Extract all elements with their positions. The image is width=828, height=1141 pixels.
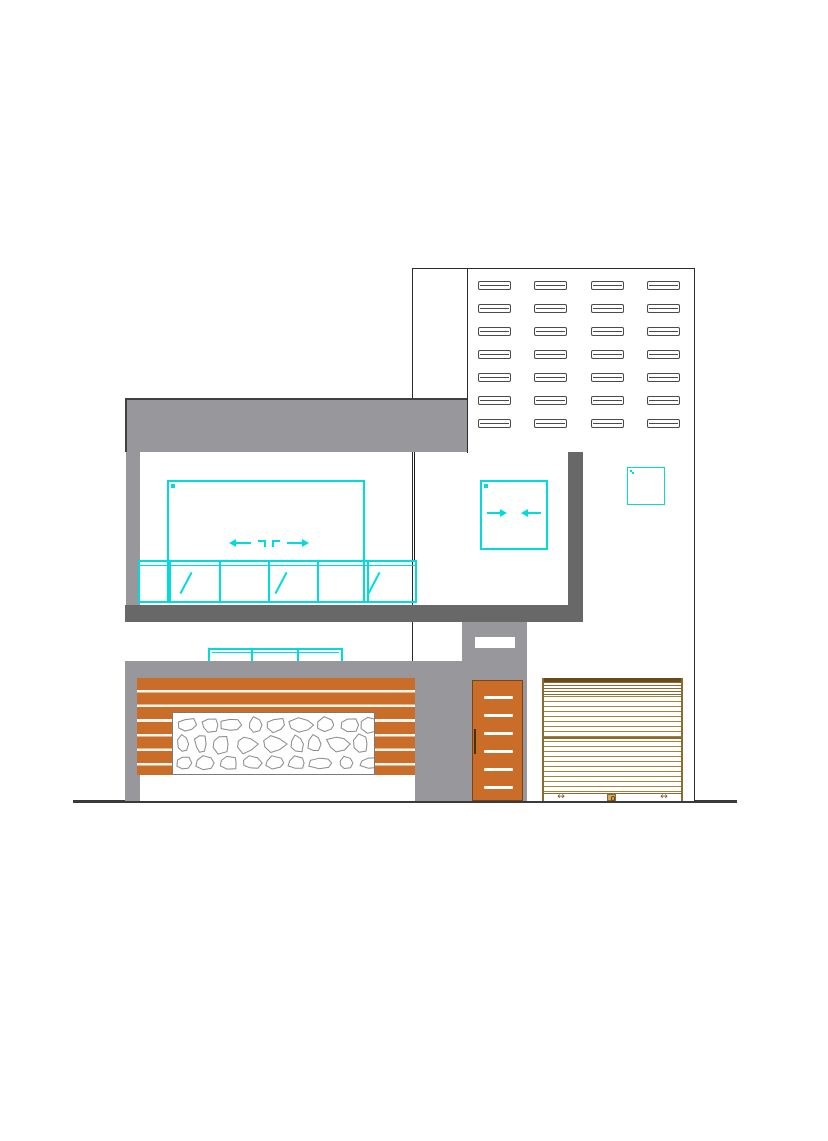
rolling-shutter: ↔ ↔ bbox=[542, 678, 683, 801]
door-stripe bbox=[484, 714, 513, 717]
stone-cladding-panel bbox=[172, 712, 375, 775]
shutter-slats bbox=[544, 696, 681, 793]
shutter-coil-lines bbox=[544, 682, 681, 696]
stone bbox=[318, 717, 334, 732]
stone bbox=[238, 737, 259, 754]
door-stripe bbox=[484, 732, 513, 735]
stone bbox=[202, 719, 218, 732]
slide-corner-right-icon bbox=[272, 540, 280, 547]
stone bbox=[177, 757, 192, 769]
louver-window bbox=[627, 467, 665, 505]
slide-arrow-inward-left-icon bbox=[487, 512, 500, 514]
slide-corner-left-icon bbox=[258, 540, 266, 547]
hidden-window-mullion bbox=[251, 648, 253, 661]
hidden-window-top-line bbox=[208, 648, 343, 650]
balcony-mullion bbox=[268, 562, 270, 601]
balcony-glazing-band bbox=[138, 560, 417, 603]
stone bbox=[360, 758, 374, 769]
stone bbox=[250, 717, 263, 733]
vent-block bbox=[647, 304, 680, 313]
vent-block bbox=[478, 304, 511, 313]
slide-arrow-right-icon bbox=[287, 542, 302, 544]
vent-block bbox=[478, 327, 511, 336]
tower-divider-line bbox=[467, 268, 468, 453]
main-door bbox=[472, 680, 523, 801]
plinth-band bbox=[140, 775, 415, 801]
balcony-mullion bbox=[317, 562, 319, 601]
door-stripe bbox=[484, 768, 513, 771]
vent-block bbox=[591, 419, 624, 428]
stone bbox=[196, 756, 214, 770]
stone bbox=[361, 717, 374, 733]
room-partition-line bbox=[414, 452, 415, 560]
door-stripe bbox=[484, 750, 513, 753]
door-stripe bbox=[484, 696, 513, 699]
vent-block bbox=[647, 350, 680, 359]
vent-block bbox=[647, 327, 680, 336]
name-plate bbox=[475, 637, 515, 648]
vent-block bbox=[647, 281, 680, 290]
balcony-mullion bbox=[169, 562, 171, 601]
stone bbox=[309, 758, 332, 769]
balcony-mullion bbox=[367, 562, 369, 601]
vent-block bbox=[534, 281, 567, 290]
parapet-band bbox=[125, 398, 467, 452]
stone bbox=[354, 734, 368, 752]
vent-block bbox=[534, 373, 567, 382]
stone bbox=[288, 756, 304, 768]
vent-block bbox=[534, 327, 567, 336]
stone bbox=[194, 736, 206, 753]
glass-slash-mark bbox=[179, 572, 192, 594]
vent-block bbox=[478, 350, 511, 359]
vent-block bbox=[478, 419, 511, 428]
stone bbox=[266, 756, 284, 769]
column-dark-strip bbox=[568, 452, 583, 622]
sliding-window-small bbox=[480, 480, 548, 550]
vent-block bbox=[478, 373, 511, 382]
stone bbox=[291, 735, 303, 752]
louver-slat bbox=[632, 472, 634, 474]
vent-block bbox=[478, 281, 511, 290]
stone bbox=[264, 736, 288, 753]
stone bbox=[220, 756, 236, 769]
door-stripe bbox=[484, 786, 513, 789]
stone bbox=[341, 719, 358, 732]
vent-block bbox=[591, 304, 624, 313]
vent-block bbox=[591, 373, 624, 382]
shutter-lock-icon bbox=[607, 794, 616, 801]
shutter-handle-icon: ↔ bbox=[554, 793, 568, 801]
vent-block bbox=[534, 304, 567, 313]
vent-block bbox=[647, 373, 680, 382]
vent-block bbox=[591, 327, 624, 336]
stone bbox=[244, 756, 263, 769]
hidden-window-mullion bbox=[208, 648, 210, 661]
house-elevation-drawing: ↔ ↔ bbox=[0, 0, 828, 1141]
vent-block bbox=[591, 396, 624, 405]
shutter-mid-rail bbox=[544, 737, 681, 739]
stone bbox=[267, 719, 284, 733]
floor-slab bbox=[125, 605, 583, 622]
door-handle bbox=[474, 729, 477, 754]
hidden-window-inner-line bbox=[212, 652, 339, 653]
window-pane bbox=[171, 484, 175, 488]
slide-arrow-inward-right-icon bbox=[528, 512, 541, 514]
stone bbox=[213, 737, 228, 755]
vent-block bbox=[534, 396, 567, 405]
shutter-handle-icon: ↔ bbox=[657, 793, 671, 801]
stone-pattern bbox=[173, 713, 374, 774]
stone bbox=[178, 719, 196, 731]
slide-arrow-left-icon bbox=[236, 542, 251, 544]
vent-block bbox=[647, 396, 680, 405]
hidden-window-mullion bbox=[297, 648, 299, 661]
stone bbox=[221, 719, 242, 730]
glass-slash-mark bbox=[274, 572, 287, 594]
vent-block bbox=[647, 419, 680, 428]
stone bbox=[178, 735, 189, 752]
vent-block bbox=[534, 350, 567, 359]
vent-block bbox=[591, 350, 624, 359]
stone bbox=[289, 718, 314, 732]
stone bbox=[308, 735, 321, 751]
stone bbox=[340, 756, 353, 768]
stone bbox=[327, 737, 351, 752]
louver-leaf bbox=[630, 470, 632, 472]
vent-block bbox=[591, 281, 624, 290]
vent-block bbox=[478, 396, 511, 405]
glass-slash-mark bbox=[367, 572, 380, 594]
vent-block bbox=[534, 419, 567, 428]
hidden-window-mullion bbox=[341, 648, 343, 661]
balcony-mullion bbox=[219, 562, 221, 601]
vent-block-grid bbox=[478, 281, 680, 428]
window-pane bbox=[484, 484, 488, 488]
